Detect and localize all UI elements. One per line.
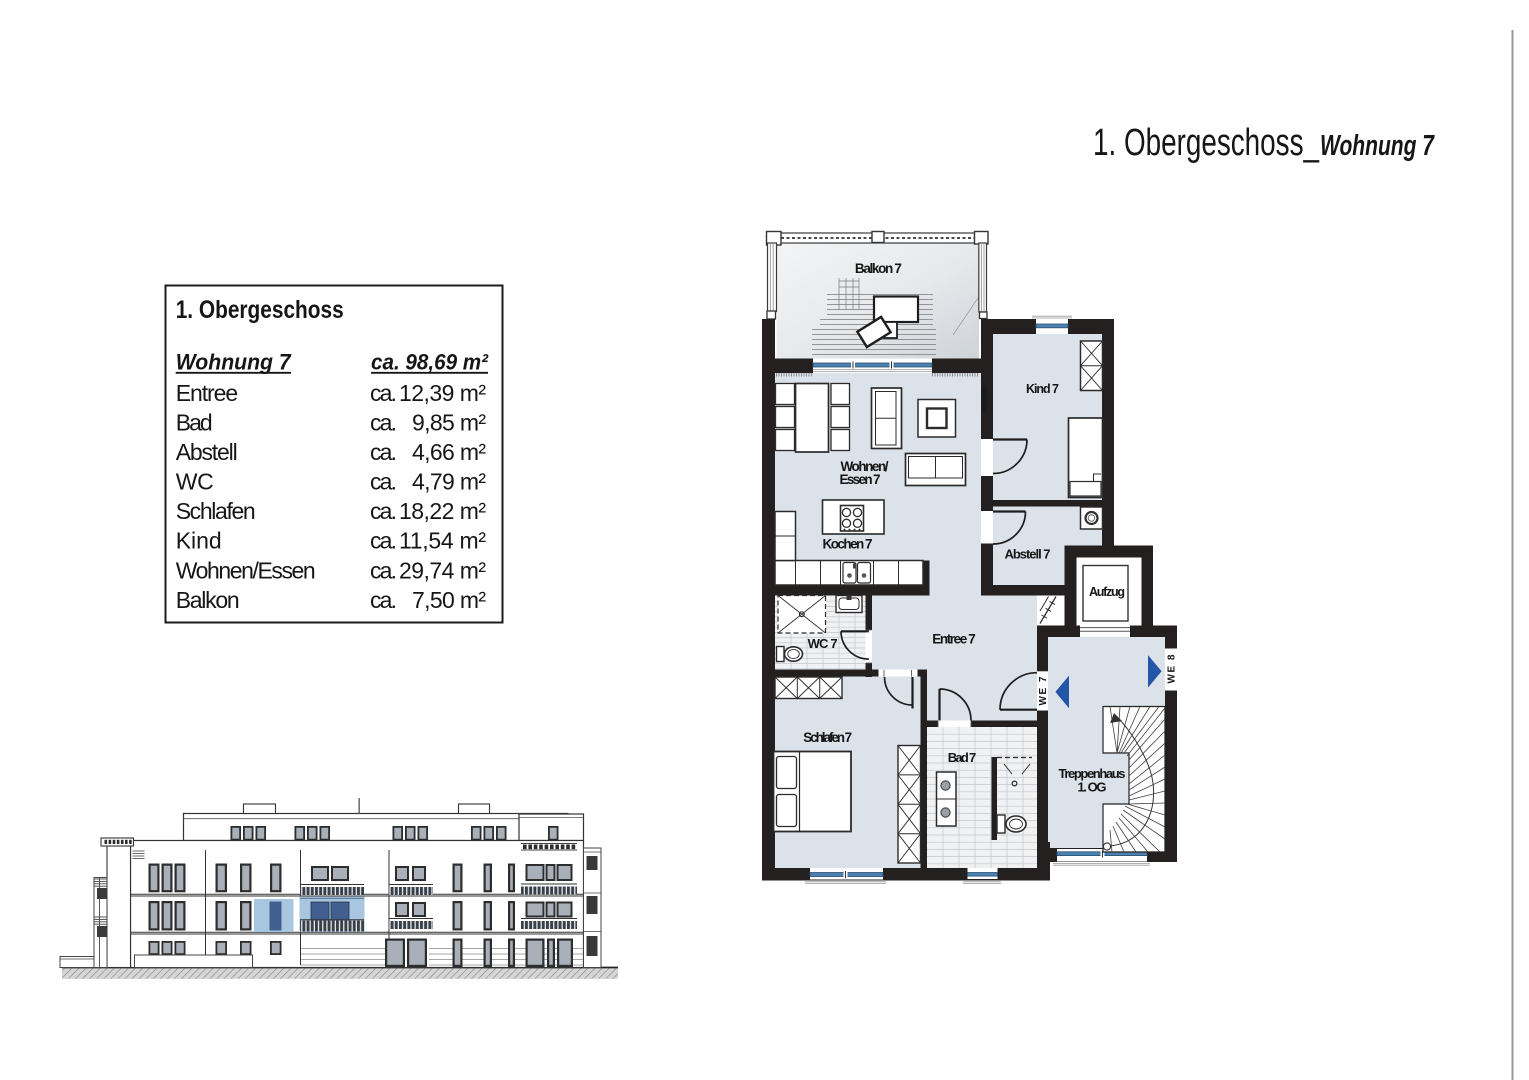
svg-text:ca.: ca. [370, 468, 397, 494]
svg-text:Entree: Entree [176, 380, 239, 406]
svg-text:Bad 7: Bad 7 [948, 750, 977, 765]
svg-text:ca.: ca. [370, 587, 397, 613]
svg-text:Kind 7: Kind 7 [1026, 382, 1059, 396]
svg-text:12,39 m²: 12,39 m² [399, 380, 486, 406]
svg-text:Kochen 7: Kochen 7 [823, 537, 873, 552]
svg-text:1. Obergeschoss_: 1. Obergeschoss_ [1093, 122, 1320, 164]
svg-text:WC 7: WC 7 [808, 636, 838, 651]
svg-text:4,66 m²: 4,66 m² [412, 439, 486, 465]
svg-text:WE 8: WE 8 [1166, 654, 1177, 683]
svg-text:ca.: ca. [370, 528, 397, 554]
svg-text:4,79 m²: 4,79 m² [412, 468, 486, 494]
svg-text:Entree 7: Entree 7 [932, 632, 976, 647]
svg-text:1. Obergeschoss: 1. Obergeschoss [176, 296, 344, 324]
svg-text:Kind: Kind [176, 528, 222, 554]
svg-text:Wohnen/Essen: Wohnen/Essen [176, 557, 316, 583]
svg-text:1. OG: 1. OG [1078, 780, 1107, 795]
svg-text:Wohnung 7: Wohnung 7 [176, 349, 293, 374]
svg-text:ca. 98,69 m²: ca. 98,69 m² [371, 349, 489, 374]
svg-text:18,22 m²: 18,22 m² [399, 498, 486, 524]
svg-text:Aufzug: Aufzug [1089, 585, 1125, 599]
svg-text:ca.: ca. [370, 498, 397, 524]
svg-text:Essen 7: Essen 7 [840, 472, 881, 487]
svg-text:ca.: ca. [370, 380, 397, 406]
svg-text:29,74 m²: 29,74 m² [399, 557, 486, 583]
svg-text:Abstell: Abstell [176, 439, 238, 465]
svg-text:Balkon 7: Balkon 7 [855, 261, 902, 276]
svg-text:WE 7: WE 7 [1038, 676, 1049, 705]
svg-text:Schlafen 7: Schlafen 7 [803, 730, 852, 745]
svg-text:9,85 m²: 9,85 m² [412, 409, 486, 435]
svg-text:ca.: ca. [370, 557, 397, 583]
svg-text:Bad: Bad [176, 409, 213, 435]
svg-text:WC: WC [176, 468, 214, 494]
svg-text:Abstell 7: Abstell 7 [1005, 547, 1051, 562]
svg-text:7,50 m²: 7,50 m² [412, 587, 486, 613]
svg-text:11,54 m²: 11,54 m² [399, 528, 486, 554]
svg-text:Wohnung 7: Wohnung 7 [1320, 130, 1435, 162]
svg-text:Balkon: Balkon [176, 587, 240, 613]
svg-text:Schlafen: Schlafen [176, 498, 256, 524]
svg-text:ca.: ca. [370, 409, 397, 435]
svg-text:ca.: ca. [370, 439, 397, 465]
